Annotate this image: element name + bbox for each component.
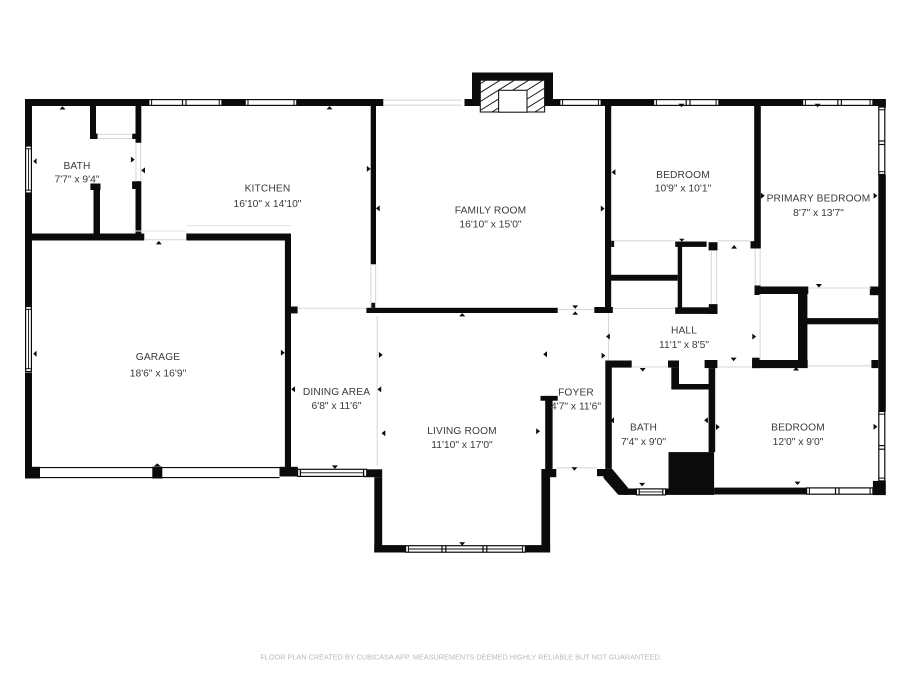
svg-text:BEDROOM: BEDROOM — [771, 423, 825, 434]
svg-text:KITCHEN: KITCHEN — [245, 184, 291, 195]
svg-text:11'10" x 17'0": 11'10" x 17'0" — [431, 440, 493, 451]
svg-text:HALL: HALL — [671, 326, 697, 337]
svg-text:4'7" x 11'6": 4'7" x 11'6" — [551, 401, 601, 412]
svg-text:DINING AREA: DINING AREA — [303, 387, 370, 398]
svg-text:LIVING ROOM: LIVING ROOM — [427, 426, 497, 437]
svg-text:BATH: BATH — [63, 161, 90, 172]
svg-text:7'7" x 9'4": 7'7" x 9'4" — [54, 175, 99, 186]
svg-text:11'1" x 8'5": 11'1" x 8'5" — [659, 340, 709, 351]
svg-text:10'9" x 10'1": 10'9" x 10'1" — [655, 184, 712, 195]
svg-text:BATH: BATH — [630, 423, 657, 434]
svg-text:FLOOR PLAN CREATED BY CUBICASA: FLOOR PLAN CREATED BY CUBICASA APP. MEAS… — [260, 653, 661, 662]
svg-text:FOYER: FOYER — [558, 387, 594, 398]
svg-text:18'6" x 16'9": 18'6" x 16'9" — [130, 369, 187, 380]
svg-text:BEDROOM: BEDROOM — [656, 170, 710, 181]
svg-text:6'8" x 11'6": 6'8" x 11'6" — [312, 401, 362, 412]
svg-text:FAMILY ROOM: FAMILY ROOM — [455, 205, 526, 216]
svg-text:12'0" x 9'0": 12'0" x 9'0" — [773, 437, 824, 448]
svg-text:16'10" x 14'10": 16'10" x 14'10" — [234, 199, 302, 210]
svg-text:7'4" x 9'0": 7'4" x 9'0" — [621, 437, 666, 448]
svg-text:GARAGE: GARAGE — [136, 352, 181, 363]
svg-text:16'10" x 15'0": 16'10" x 15'0" — [459, 219, 522, 230]
svg-text:8'7" x 13'7": 8'7" x 13'7" — [793, 208, 844, 219]
svg-text:PRIMARY BEDROOM: PRIMARY BEDROOM — [767, 194, 871, 205]
